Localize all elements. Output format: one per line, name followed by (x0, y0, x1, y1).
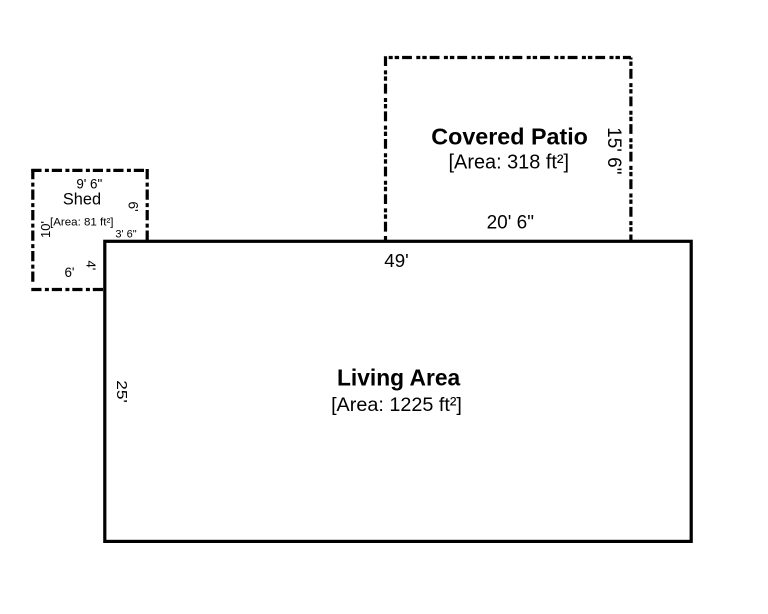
svg-text:49': 49' (384, 250, 408, 271)
svg-text:15' 6": 15' 6" (603, 127, 624, 174)
svg-text:Living Area: Living Area (337, 365, 461, 391)
svg-text:4': 4' (84, 261, 99, 271)
svg-text:6': 6' (64, 265, 74, 280)
svg-text:25': 25' (113, 380, 129, 403)
svg-text:[Area: 1225 ft²]: [Area: 1225 ft²] (331, 394, 462, 416)
svg-text:10': 10' (38, 221, 53, 238)
svg-text:20' 6": 20' 6" (487, 212, 534, 233)
svg-text:3' 6": 3' 6" (115, 229, 136, 241)
svg-text:[Area: 318 ft²]: [Area: 318 ft²] (449, 152, 570, 174)
svg-text:[Area: 81 ft²]: [Area: 81 ft²] (50, 216, 114, 228)
svg-text:Shed: Shed (63, 190, 101, 208)
svg-text:6': 6' (126, 201, 141, 211)
svg-text:Covered Patio: Covered Patio (431, 124, 588, 150)
svg-text:9' 6": 9' 6" (76, 176, 102, 191)
